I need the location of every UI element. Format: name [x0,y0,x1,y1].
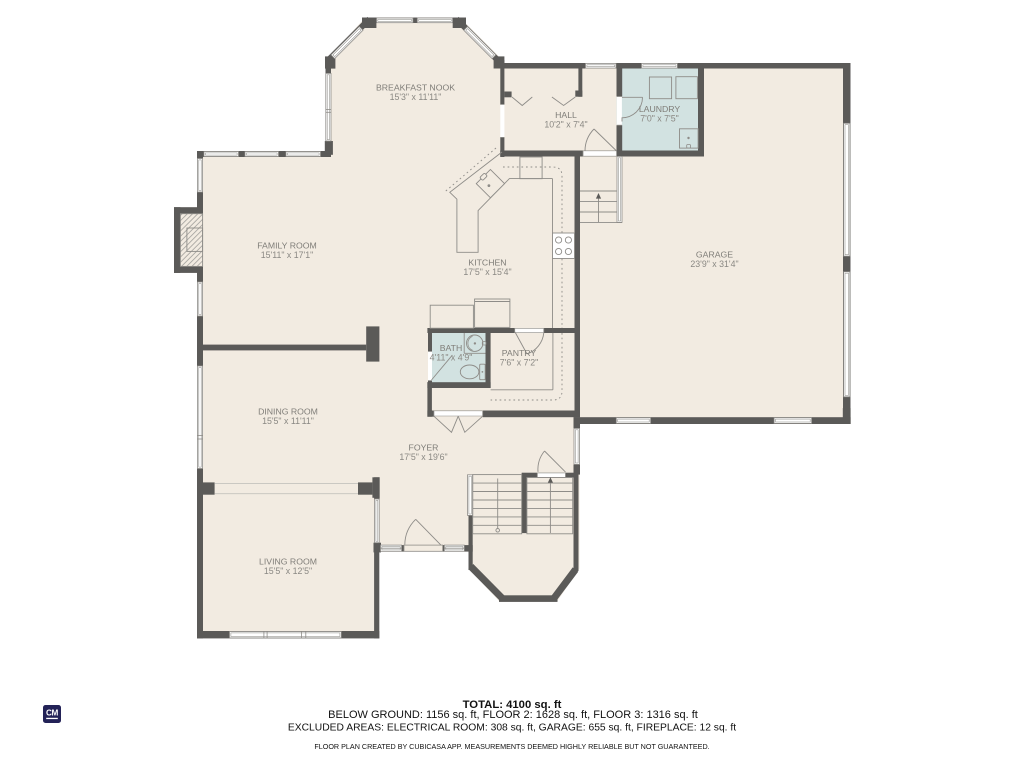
svg-text:17'5" x 19'6": 17'5" x 19'6" [399,452,447,462]
svg-text:BREAKFAST NOOK: BREAKFAST NOOK [376,83,455,93]
svg-text:GARAGE: GARAGE [696,250,733,260]
svg-text:15'3" x 11'11": 15'3" x 11'11" [390,92,442,102]
svg-text:15'11" x 17'1": 15'11" x 17'1" [261,250,314,260]
svg-text:15'5" x 12'5": 15'5" x 12'5" [264,566,312,576]
svg-text:DINING ROOM: DINING ROOM [258,407,318,417]
svg-text:7'0" x 7'5": 7'0" x 7'5" [640,114,678,124]
svg-text:10'2" x 7'4": 10'2" x 7'4" [544,120,587,130]
svg-text:23'9" x 31'4": 23'9" x 31'4" [690,259,738,269]
svg-text:HALL: HALL [555,110,577,120]
svg-text:15'5" x 11'11": 15'5" x 11'11" [262,416,314,426]
svg-text:CM: CM [46,709,59,718]
svg-text:FAMILY ROOM: FAMILY ROOM [257,241,317,251]
svg-text:FOYER: FOYER [409,443,439,453]
svg-text:4'11" x 4'9": 4'11" x 4'9" [430,352,473,362]
svg-text:FLOOR PLAN CREATED BY CUBICASA: FLOOR PLAN CREATED BY CUBICASA APP. MEAS… [314,742,709,751]
svg-text:LIVING ROOM: LIVING ROOM [259,557,317,567]
svg-text:LAUNDRY: LAUNDRY [639,104,681,114]
svg-text:KITCHEN: KITCHEN [468,258,506,268]
svg-text:7'6" x 7'2": 7'6" x 7'2" [500,358,538,368]
svg-text:BELOW GROUND: 1156 sq. ft, FLO: BELOW GROUND: 1156 sq. ft, FLOOR 2: 1628… [328,709,698,721]
svg-text:EXCLUDED AREAS: ELECTRICAL ROO: EXCLUDED AREAS: ELECTRICAL ROOM: 308 sq.… [288,723,736,734]
svg-text:17'5" x 15'4": 17'5" x 15'4" [463,267,511,277]
svg-text:BATH: BATH [440,343,463,353]
svg-text:PANTRY: PANTRY [502,348,537,358]
